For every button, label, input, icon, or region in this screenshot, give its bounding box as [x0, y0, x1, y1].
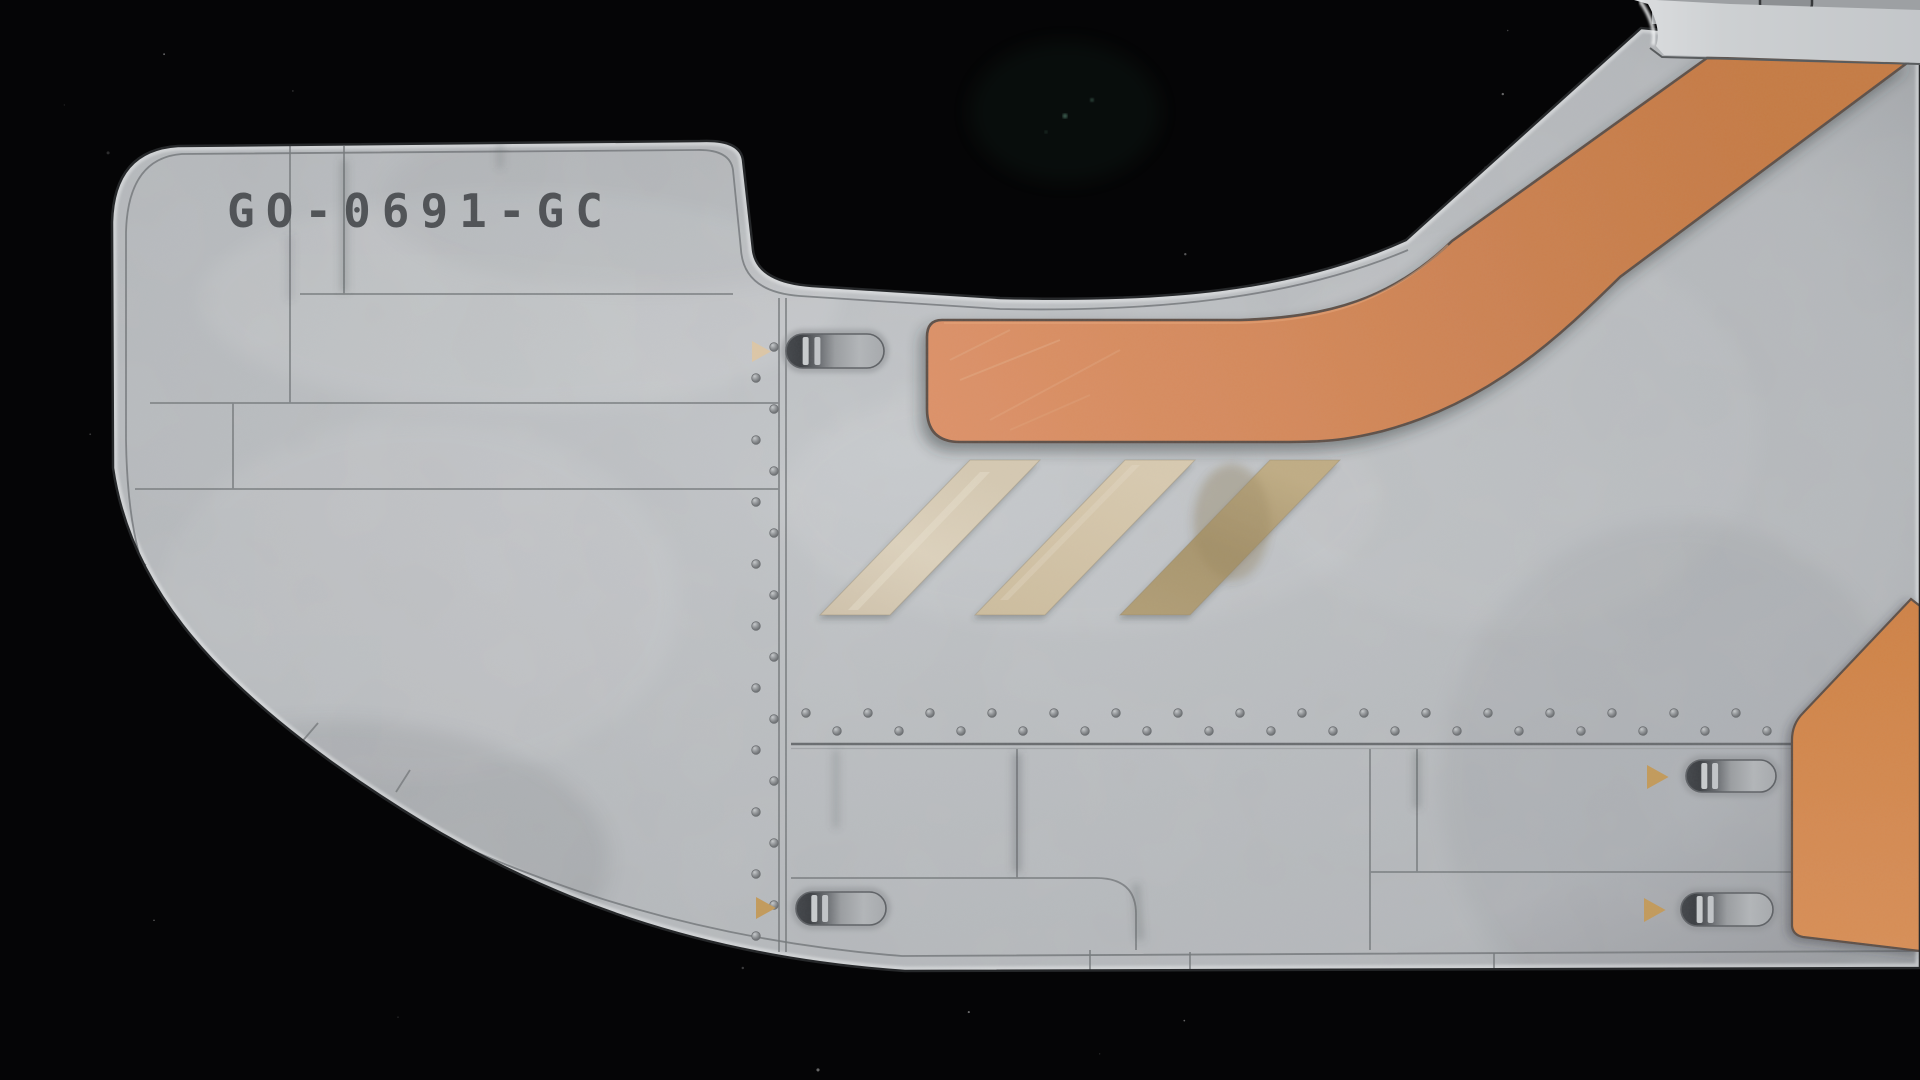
star	[742, 967, 744, 969]
star	[153, 920, 154, 921]
star	[968, 1011, 970, 1013]
hull-rim-piece	[1634, 0, 1920, 64]
star	[397, 1017, 398, 1018]
star	[816, 1068, 819, 1071]
star	[1099, 1053, 1100, 1054]
star	[89, 433, 91, 435]
star	[1183, 1020, 1185, 1022]
green-star	[1045, 131, 1048, 134]
game-viewport[interactable]: GO-0691-GC	[0, 0, 1920, 1080]
star	[1507, 30, 1509, 32]
star	[163, 53, 165, 55]
green-star	[1063, 114, 1068, 119]
nebula-glow	[970, 42, 1160, 182]
space-scene: GO-0691-GC	[0, 0, 1920, 1080]
star	[107, 151, 110, 154]
star	[292, 90, 293, 91]
green-star	[1090, 98, 1094, 102]
rim-shape	[1634, 0, 1920, 63]
star	[1502, 93, 1504, 95]
star	[1184, 253, 1186, 255]
star	[64, 104, 65, 105]
